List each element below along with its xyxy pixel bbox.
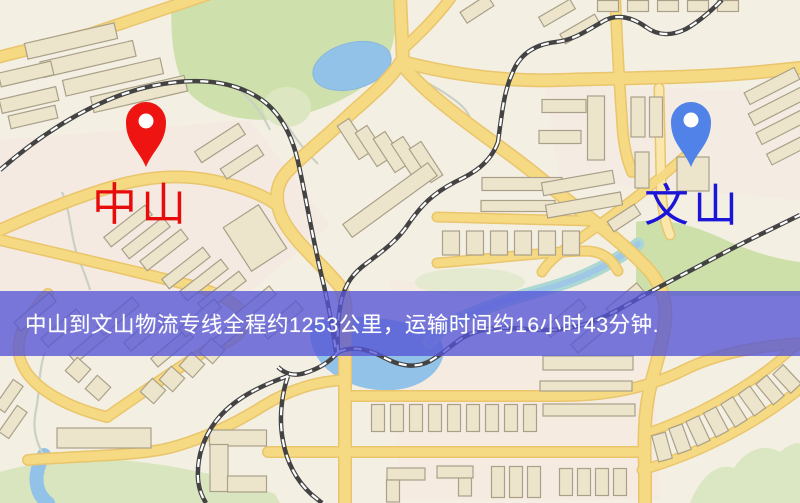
origin-label: 中山	[92, 180, 190, 230]
haze-overlay	[0, 0, 800, 503]
pin-hole	[684, 113, 699, 128]
route-info-banner: 中山到文山物流专线全程约1253公里，运输时间约16小时43分钟.	[0, 291, 800, 356]
map-screenshot: 中山 文山 中山到文山物流专线全程约1253公里，运输时间约16小时43分钟.	[0, 0, 800, 503]
destination-label: 文山	[644, 181, 742, 231]
route-info-text: 中山到文山物流专线全程约1253公里，运输时间约16小时43分钟.	[25, 308, 659, 339]
pin-hole	[139, 114, 154, 129]
map-canvas[interactable]: 中山 文山	[0, 0, 800, 503]
